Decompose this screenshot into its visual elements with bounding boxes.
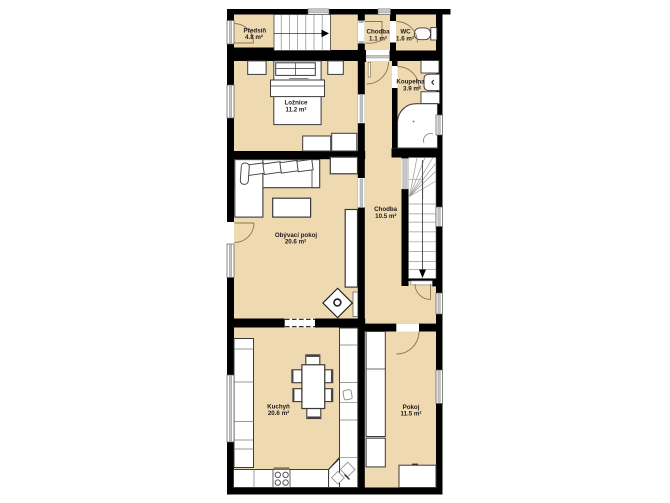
svg-text:4.8 m²: 4.8 m² [245,34,263,41]
svg-text:20.6 m²: 20.6 m² [285,239,306,246]
svg-text:3.9 m²: 3.9 m² [403,86,421,93]
svg-text:11.2 m²: 11.2 m² [286,107,307,114]
svg-text:1.6 m²: 1.6 m² [396,36,414,43]
svg-text:Koupelna: Koupelna [396,79,425,86]
svg-text:1.1 m²: 1.1 m² [369,36,387,43]
svg-text:11.5 m²: 11.5 m² [401,411,422,418]
svg-text:20.6 m²: 20.6 m² [268,410,289,417]
svg-text:10.5 m²: 10.5 m² [375,213,396,220]
